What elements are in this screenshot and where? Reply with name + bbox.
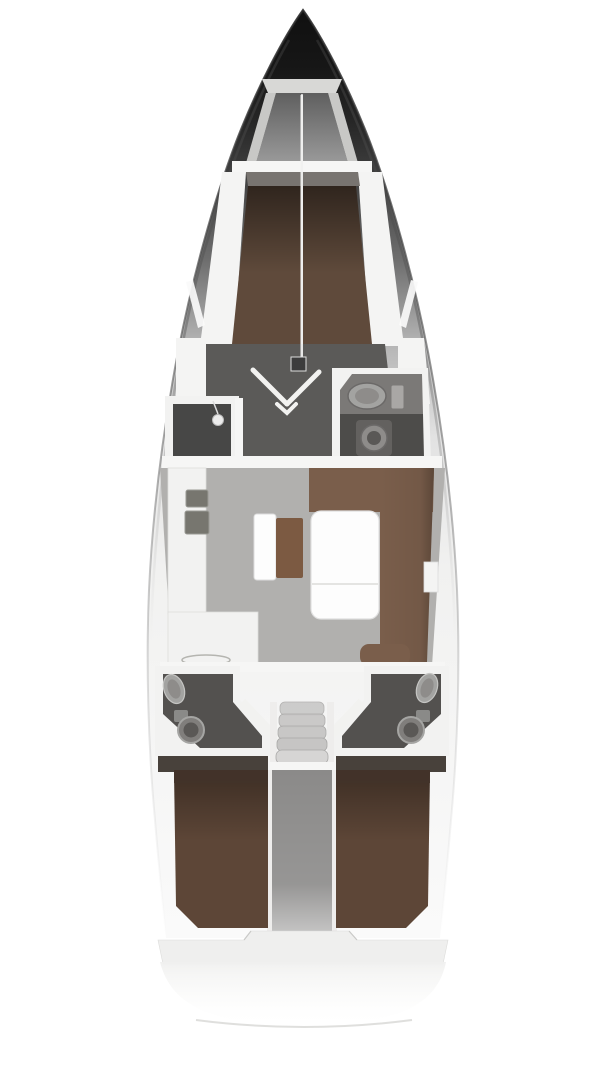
salon — [160, 456, 445, 666]
shower-head-icon — [213, 415, 224, 426]
salon-bench — [254, 514, 276, 580]
step-5 — [276, 750, 328, 764]
mast-step — [291, 357, 306, 371]
mast-line — [301, 95, 304, 358]
deck-locker-port — [176, 338, 206, 404]
galley-sink-2 — [185, 511, 209, 534]
engine-compartment — [267, 770, 337, 933]
salon-bench-backrest — [276, 518, 303, 578]
hall-wall-port — [235, 398, 243, 464]
table-top — [311, 511, 379, 619]
step-1 — [280, 702, 324, 715]
yacht-floorplan — [0, 0, 608, 1080]
anchor-locker-hatch — [262, 79, 342, 93]
stern-fade — [160, 962, 446, 1028]
step-4 — [277, 738, 327, 751]
salon-bulkhead — [162, 456, 442, 468]
forward-head — [332, 368, 431, 464]
aft-cabin-starboard-headboard — [336, 770, 430, 783]
aft-cabin-port-bed-shade — [174, 770, 268, 928]
floorplan-page — [0, 0, 608, 1080]
settee-locker — [424, 562, 438, 592]
aft-head-starboard-toilet-bowl — [404, 723, 419, 738]
stern-platform — [158, 931, 448, 1028]
step-2 — [279, 714, 325, 727]
galley-counter-aft — [168, 612, 258, 666]
aft-cabin-port — [174, 770, 268, 928]
engine-box-shade — [272, 770, 332, 933]
aft-cabin-port-headboard — [174, 770, 268, 783]
aft-head-port-toilet-bowl — [184, 723, 199, 738]
step-3 — [278, 726, 326, 739]
forward-head-toilet-bowl — [367, 431, 381, 445]
forward-head-faucet — [391, 385, 404, 409]
aft-cabin-starboard — [336, 770, 430, 928]
salon-table — [311, 511, 379, 619]
forward-head-sink-basin — [355, 388, 379, 404]
companionway-steps — [276, 702, 328, 764]
galley-sink-1 — [186, 490, 208, 507]
aft-cabin-starboard-bed-shade — [336, 770, 430, 928]
shower-floor — [173, 404, 231, 458]
